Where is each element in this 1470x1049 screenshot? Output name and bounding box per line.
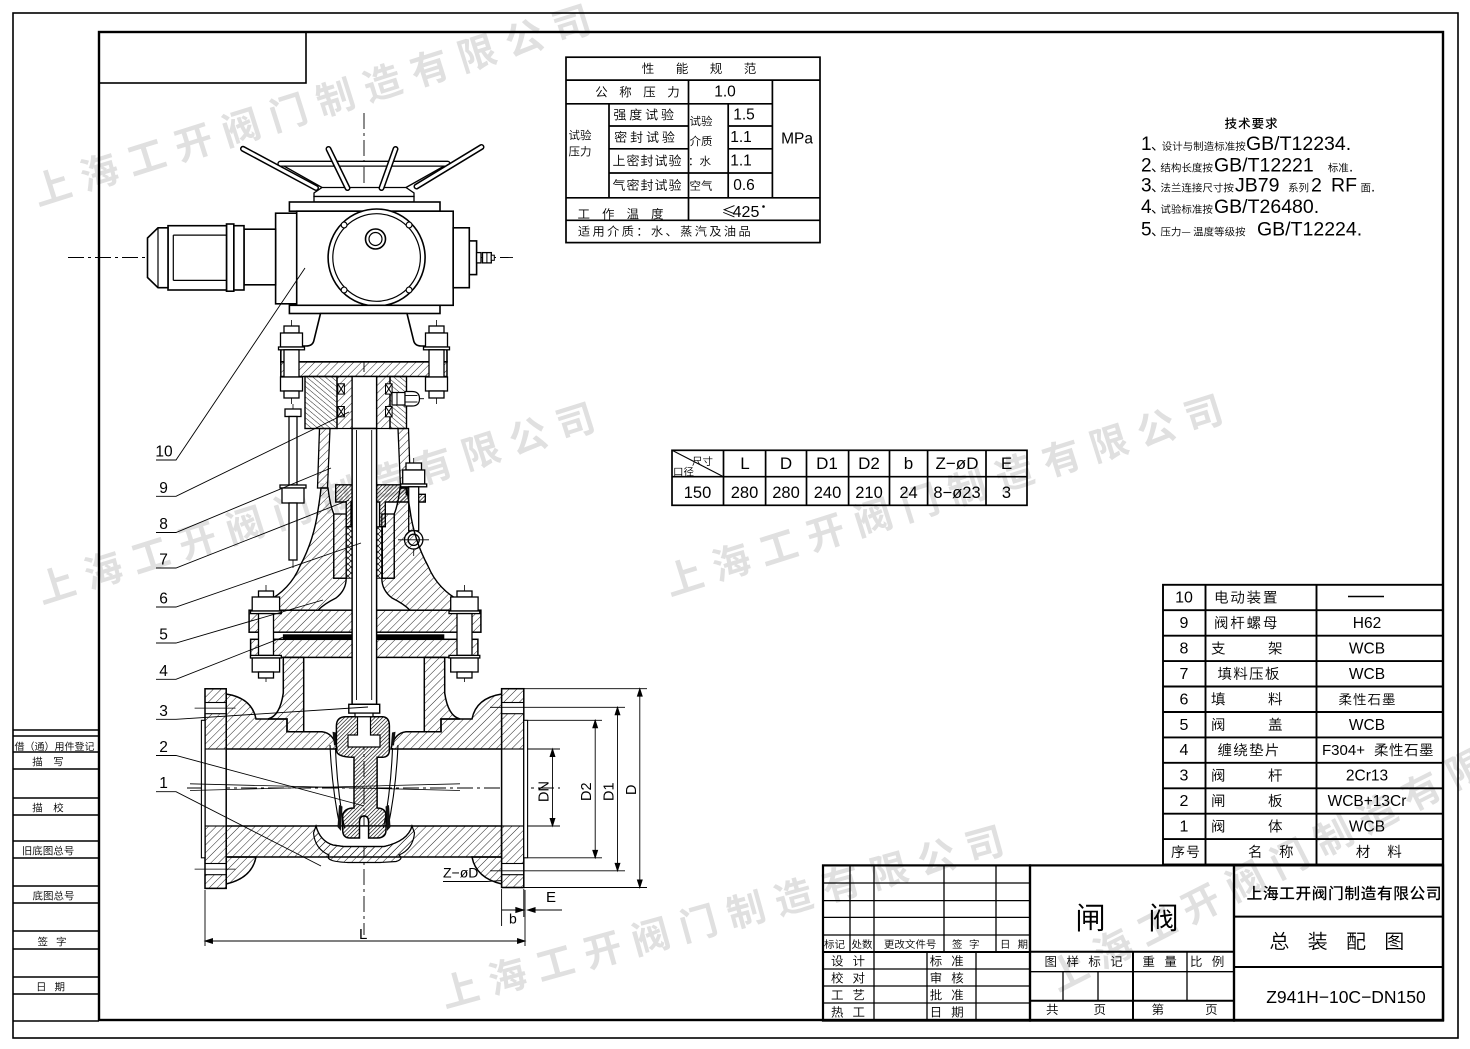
svg-text:2: 2 <box>159 739 168 756</box>
svg-text:b: b <box>904 454 913 473</box>
svg-text:8−ø23: 8−ø23 <box>933 484 980 502</box>
svg-text:2Cr13: 2Cr13 <box>1346 768 1388 785</box>
svg-text:1: 1 <box>1180 819 1189 836</box>
svg-text:1.0: 1.0 <box>714 84 736 101</box>
svg-text:WCB: WCB <box>1349 717 1385 734</box>
svg-text:0.6: 0.6 <box>733 177 755 194</box>
svg-text:2: 2 <box>1311 175 1322 197</box>
svg-text:DN: DN <box>537 781 553 802</box>
svg-text:5: 5 <box>159 627 168 644</box>
svg-text:24: 24 <box>899 484 917 502</box>
svg-text:9: 9 <box>1180 615 1189 632</box>
svg-text:6: 6 <box>159 591 168 608</box>
svg-text:E: E <box>546 889 556 906</box>
svg-text:240: 240 <box>814 484 842 502</box>
svg-text:GB/T26480.: GB/T26480. <box>1214 196 1319 218</box>
svg-text:1: 1 <box>159 775 168 792</box>
svg-text:2: 2 <box>1141 156 1152 177</box>
svg-text:WCB: WCB <box>1349 819 1385 836</box>
svg-text:8: 8 <box>1180 641 1189 658</box>
svg-text:2: 2 <box>1180 793 1189 810</box>
svg-text:9: 9 <box>159 480 168 497</box>
svg-text:3: 3 <box>1180 768 1189 785</box>
svg-text:E: E <box>1001 454 1012 473</box>
svg-text:D: D <box>780 454 792 473</box>
svg-text:D1: D1 <box>602 782 618 801</box>
svg-text:3: 3 <box>1002 484 1011 502</box>
svg-text:Z−øD: Z−øD <box>443 865 478 881</box>
svg-text:280: 280 <box>731 484 759 502</box>
svg-text:280: 280 <box>772 484 800 502</box>
svg-text:GB/T12221: GB/T12221 <box>1214 155 1314 177</box>
svg-text:D2: D2 <box>579 782 595 801</box>
svg-text:D: D <box>624 785 640 795</box>
svg-text:6: 6 <box>1180 691 1189 708</box>
svg-text:10: 10 <box>155 444 173 461</box>
svg-text:JB79: JB79 <box>1235 175 1279 197</box>
svg-text:7: 7 <box>1180 666 1189 683</box>
svg-text:4: 4 <box>159 663 168 680</box>
svg-text:RF: RF <box>1331 175 1357 197</box>
svg-text:L: L <box>359 926 367 943</box>
svg-text:425: 425 <box>733 204 760 221</box>
svg-text:4: 4 <box>1141 197 1152 218</box>
svg-text:1.5: 1.5 <box>733 107 755 124</box>
svg-text:WCB: WCB <box>1349 641 1385 658</box>
svg-text:H62: H62 <box>1353 615 1381 632</box>
svg-text:Z941H−10C−DN150: Z941H−10C−DN150 <box>1266 987 1426 1007</box>
svg-text:4: 4 <box>1180 742 1189 759</box>
svg-text:WCB: WCB <box>1349 666 1385 683</box>
svg-text:D2: D2 <box>858 454 880 473</box>
svg-text:8: 8 <box>159 516 168 533</box>
svg-text:3: 3 <box>159 703 168 720</box>
svg-text:5: 5 <box>1141 220 1152 241</box>
svg-text:10: 10 <box>1175 590 1193 607</box>
svg-text:7: 7 <box>159 552 168 569</box>
svg-text:GB/T12234.: GB/T12234. <box>1246 133 1351 155</box>
svg-text:1: 1 <box>1141 134 1152 155</box>
svg-text:1.1: 1.1 <box>730 153 752 170</box>
svg-text:.: . <box>1349 159 1353 176</box>
svg-text:Z−øD: Z−øD <box>936 454 979 473</box>
svg-text:D1: D1 <box>816 454 838 473</box>
svg-text:.: . <box>1371 179 1375 196</box>
svg-text:210: 210 <box>855 484 883 502</box>
svg-text:MPa: MPa <box>781 131 813 148</box>
svg-text:3: 3 <box>1141 176 1152 197</box>
svg-text:150: 150 <box>684 484 712 502</box>
svg-text:5: 5 <box>1180 717 1189 734</box>
svg-text:F304+: F304+ <box>1322 742 1365 759</box>
svg-text:WCB+13Cr: WCB+13Cr <box>1328 793 1407 810</box>
svg-text:L: L <box>740 454 749 473</box>
svg-text:1.1: 1.1 <box>730 129 752 146</box>
svg-text:GB/T12224.: GB/T12224. <box>1257 219 1362 241</box>
